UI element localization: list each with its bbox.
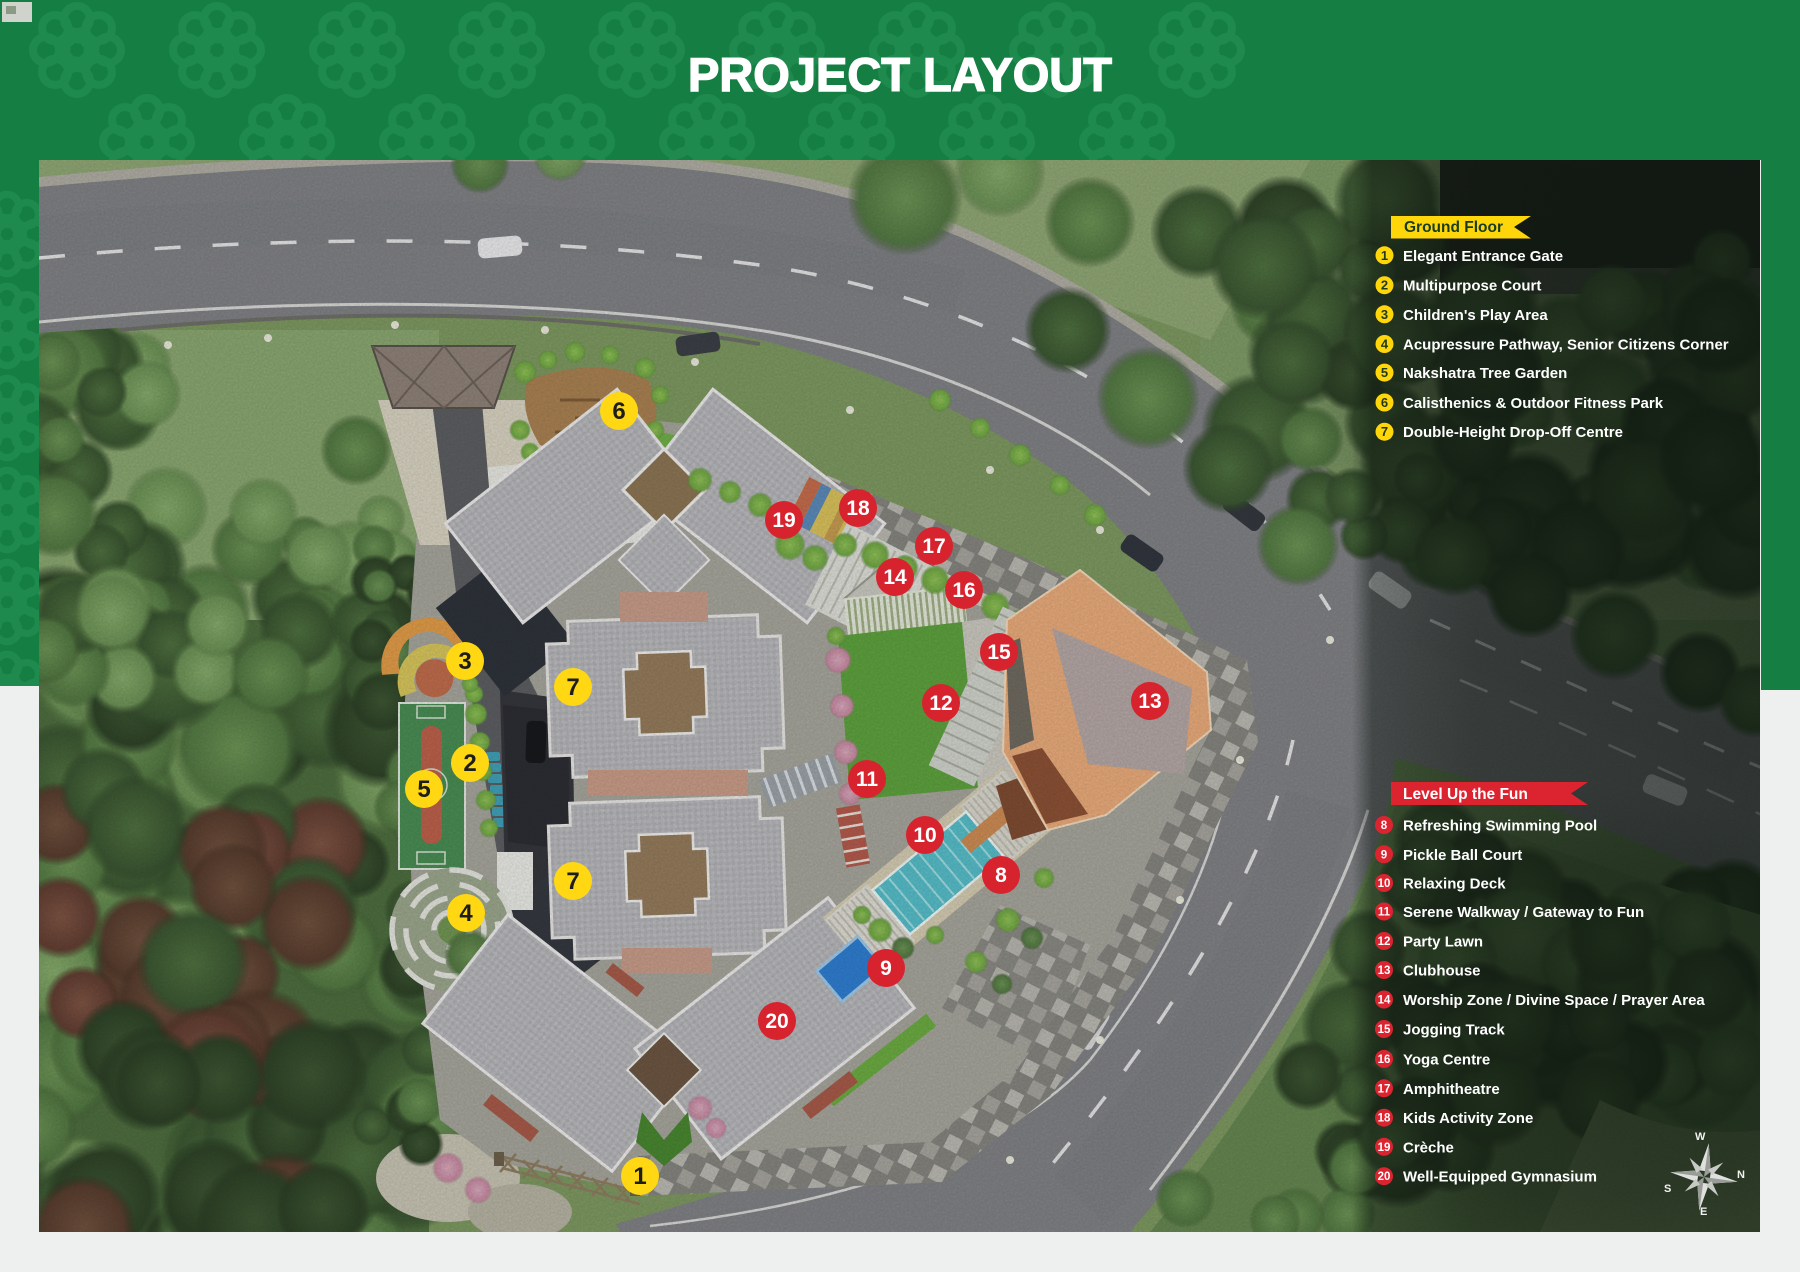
svg-text:15: 15 [1378,1024,1391,1036]
svg-text:Well-Equipped Gymnasium: Well-Equipped Gymnasium [1403,1169,1597,1186]
svg-text:S: S [1664,1183,1671,1195]
svg-text:Elegant Entrance Gate: Elegant Entrance Gate [1403,248,1563,265]
svg-text:Level Up the Fun: Level Up the Fun [1403,786,1528,803]
svg-text:11: 11 [856,768,879,791]
svg-text:19: 19 [1378,1142,1391,1154]
svg-text:PROJECT LAYOUT: PROJECT LAYOUT [688,48,1112,101]
svg-text:Worship Zone / Divine Space /: Worship Zone / Divine Space / Prayer Are… [1403,992,1705,1009]
svg-text:Refreshing Swimming Pool: Refreshing Swimming Pool [1403,818,1597,835]
svg-text:10: 10 [913,824,936,847]
svg-text:3: 3 [458,648,471,675]
svg-text:Serene Walkway / Gateway to Fu: Serene Walkway / Gateway to Fun [1403,904,1644,921]
svg-text:17: 17 [1378,1083,1391,1095]
svg-text:N: N [1737,1169,1745,1181]
svg-text:13: 13 [1138,690,1161,713]
svg-text:7: 7 [566,868,579,895]
svg-text:12: 12 [1378,936,1391,948]
svg-text:Party Lawn: Party Lawn [1403,934,1483,951]
svg-text:Yoga Centre: Yoga Centre [1403,1051,1490,1068]
svg-text:W: W [1695,1131,1706,1143]
svg-text:1: 1 [633,1163,646,1190]
svg-text:2: 2 [463,750,476,777]
svg-text:14: 14 [883,566,907,589]
svg-text:18: 18 [1378,1113,1391,1125]
svg-text:9: 9 [880,957,892,980]
svg-text:8: 8 [1381,820,1388,832]
svg-text:1: 1 [1381,248,1388,263]
svg-text:19: 19 [772,509,795,532]
svg-text:Clubhouse: Clubhouse [1403,963,1481,980]
svg-text:20: 20 [765,1010,788,1033]
svg-text:15: 15 [987,641,1011,664]
svg-text:Pickle Ball Court: Pickle Ball Court [1403,847,1522,864]
svg-text:6: 6 [1381,395,1388,410]
svg-text:Jogging Track: Jogging Track [1403,1022,1505,1039]
svg-text:5: 5 [1381,365,1388,380]
svg-text:8: 8 [995,864,1007,887]
svg-text:Ground Floor: Ground Floor [1404,219,1503,236]
svg-text:16: 16 [952,579,975,602]
svg-text:3: 3 [1381,307,1388,322]
svg-text:Multipurpose Court: Multipurpose Court [1403,278,1541,295]
svg-text:Double-Height Drop-Off Centre: Double-Height Drop-Off Centre [1403,424,1623,441]
svg-text:Amphitheatre: Amphitheatre [1403,1081,1500,1098]
svg-text:7: 7 [566,674,579,701]
svg-text:E: E [1700,1206,1707,1218]
svg-text:9: 9 [1381,849,1387,861]
svg-text:Children's Play Area: Children's Play Area [1403,307,1548,324]
svg-text:Relaxing Deck: Relaxing Deck [1403,876,1506,893]
svg-text:Kids Activity Zone: Kids Activity Zone [1403,1110,1533,1127]
svg-text:5: 5 [417,776,430,803]
svg-text:12: 12 [929,692,952,715]
svg-text:13: 13 [1378,965,1391,977]
svg-text:7: 7 [1381,424,1388,439]
svg-text:18: 18 [846,497,870,520]
svg-text:14: 14 [1378,995,1391,1007]
svg-text:17: 17 [922,535,945,558]
svg-text:Crèche: Crèche [1403,1139,1454,1156]
svg-text:20: 20 [1378,1171,1391,1183]
svg-text:11: 11 [1378,907,1391,919]
svg-text:16: 16 [1378,1054,1391,1066]
svg-text:4: 4 [459,900,473,927]
svg-text:2: 2 [1381,278,1388,293]
svg-text:Acupressure Pathway, Senior Ci: Acupressure Pathway, Senior Citizens Cor… [1403,337,1729,354]
svg-text:6: 6 [612,398,625,425]
svg-text:Calisthenics & Outdoor Fitness: Calisthenics & Outdoor Fitness Park [1403,395,1664,412]
svg-text:4: 4 [1381,337,1389,352]
svg-text:Nakshatra Tree Garden: Nakshatra Tree Garden [1403,365,1567,382]
svg-text:10: 10 [1378,878,1391,890]
